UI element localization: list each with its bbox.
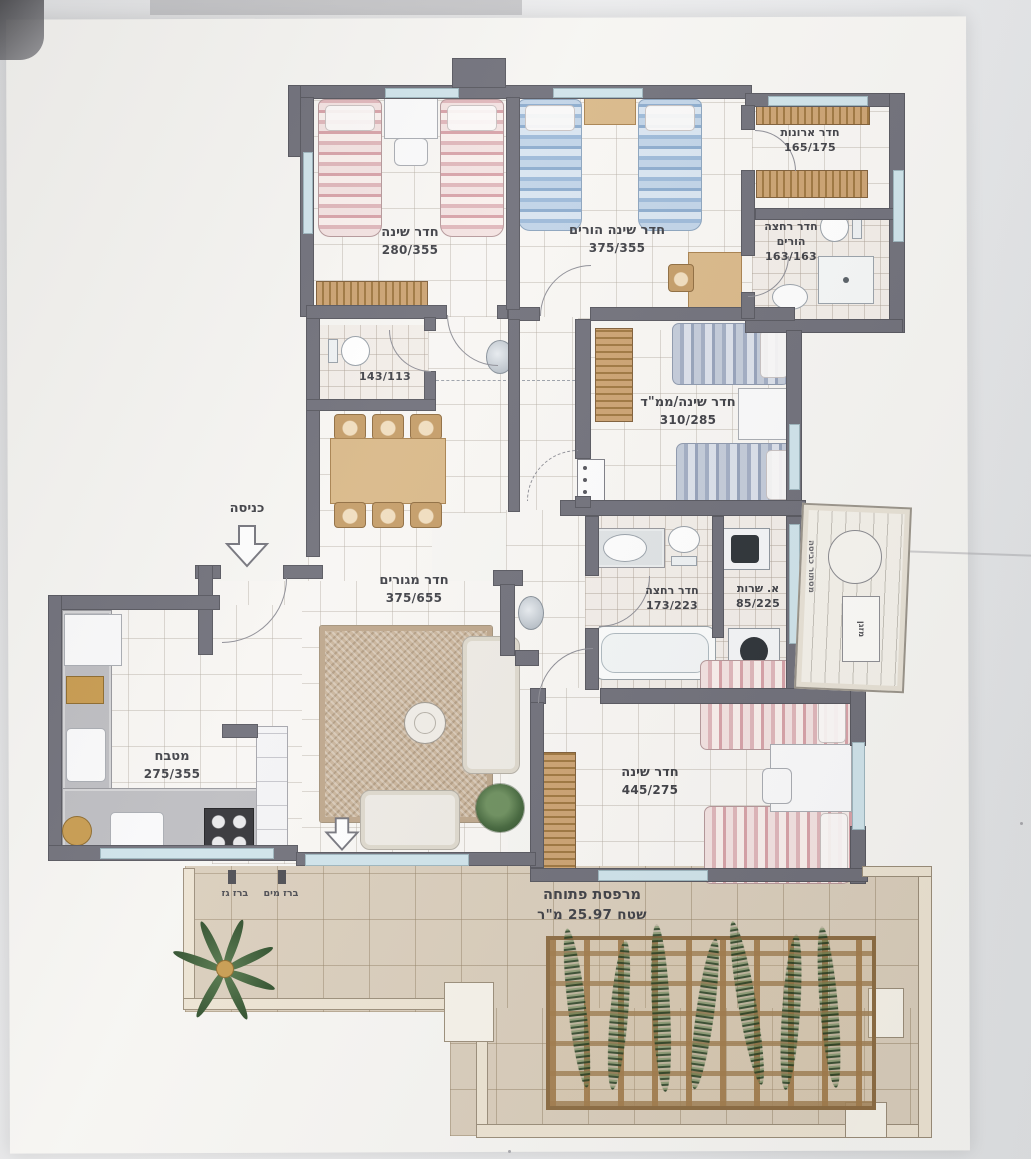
room-label-bathroom: חדר רחצה 173/223 [622, 584, 722, 614]
wall-segment [506, 97, 520, 310]
wall-segment [585, 516, 599, 576]
bed [518, 99, 582, 231]
wall-segment [306, 409, 320, 557]
nightstand [584, 97, 636, 125]
balcony-pillar [444, 982, 494, 1042]
wall-segment [575, 319, 591, 459]
window [852, 742, 865, 830]
dining-chair [372, 414, 404, 440]
dining-chair [334, 502, 366, 528]
wall-segment [745, 319, 903, 333]
dust-speck [508, 1150, 511, 1153]
entrance-label: כניסה [207, 500, 287, 518]
photo-corner-shadow [0, 0, 44, 60]
chair [668, 264, 694, 292]
dashed-line [522, 380, 575, 381]
boiler [828, 530, 882, 584]
dining-chair [410, 502, 442, 528]
wall-segment [560, 500, 806, 516]
desk-chair [762, 768, 792, 804]
wall-segment [222, 724, 258, 738]
room-label-bedroom-1: חדר שינה 280/355 [335, 224, 485, 258]
wall-segment [306, 317, 320, 409]
palm-plant [184, 922, 268, 1014]
wall-segment [755, 208, 903, 220]
floor-plan-photo: מזגן מסתור כביסה חדר שינה 280/355 חדר שי… [0, 0, 1031, 1159]
room-label-balcony: מרפסת פתוחה שטח 25.97 מ"ר [472, 886, 712, 924]
taps-label: ברז מים ברז גז [205, 888, 315, 899]
wall-segment [424, 317, 436, 331]
bed [676, 443, 800, 507]
plant-pot [216, 960, 234, 978]
desk [688, 252, 742, 308]
room-label-bedroom-2: חדר שינה 445/275 [590, 764, 710, 798]
entrance-arrow-icon [224, 524, 270, 572]
wall-segment [198, 565, 213, 655]
dining-table [330, 438, 446, 504]
ac-unit-label: מזגן [856, 621, 866, 637]
wall-segment [850, 688, 866, 746]
room-label-service-room: א. שרות 85/225 [718, 582, 798, 612]
room-label-parents-bathroom: חדר רחצה הורים 163/163 [748, 220, 834, 265]
window [768, 96, 868, 106]
room-label-parents-bedroom: חדר שינה הורים 375/355 [532, 222, 702, 256]
gas-tap-label: ברז גז [222, 888, 249, 899]
sofa [360, 790, 460, 850]
toilet [328, 336, 370, 366]
refrigerator [64, 614, 122, 666]
sink [603, 534, 647, 562]
window [553, 88, 643, 98]
wardrobe [756, 170, 868, 198]
toilet [668, 526, 700, 566]
wall-segment [306, 399, 436, 411]
desk-chair [394, 138, 428, 166]
dining-chair [334, 414, 366, 440]
washing-machine [720, 528, 770, 570]
water-tap-icon [228, 870, 236, 884]
tall-cabinet [256, 726, 288, 854]
photo-top-strip [150, 0, 522, 15]
wall-segment [500, 584, 515, 656]
bed [638, 99, 702, 231]
potted-plant [476, 784, 524, 832]
kitchen-sink [66, 728, 106, 782]
room-label-kitchen: מטבח 275/355 [122, 748, 222, 782]
room-label-safe-room: חדר שינה/ממ"ד 310/285 [620, 394, 756, 428]
wall-segment [515, 650, 539, 666]
bowl [62, 816, 92, 846]
wall-segment [452, 58, 506, 88]
wall-segment [48, 595, 62, 857]
window [598, 870, 708, 881]
room-label-small-bathroom: 143/113 [345, 370, 425, 385]
wall-segment [590, 307, 795, 321]
balcony-exit-arrow-icon [324, 816, 360, 856]
wall-segment [530, 702, 544, 868]
dining-chair [410, 414, 442, 440]
gas-tap-icon [278, 870, 286, 884]
bed [440, 99, 504, 237]
window [303, 152, 313, 234]
dining-chair [372, 502, 404, 528]
wall-segment [283, 565, 323, 579]
dashed-line [436, 380, 506, 381]
desk [384, 97, 438, 139]
tray [66, 676, 104, 704]
wall-segment [508, 319, 520, 512]
dust-speck [1020, 822, 1023, 825]
window [789, 424, 800, 490]
wall-segment [712, 516, 724, 638]
balcony-railing [862, 866, 932, 877]
bed [318, 99, 382, 237]
sofa [462, 636, 520, 774]
coffee-table [404, 702, 446, 744]
room-label-living-room: חדר מגורים 375/655 [344, 572, 484, 606]
water-tap-label: ברז מים [264, 888, 299, 899]
ac-unit: מזגן [842, 596, 880, 662]
bathtub [594, 626, 716, 680]
window [893, 170, 904, 242]
wall-segment [300, 85, 752, 99]
window [385, 88, 459, 98]
window [100, 848, 274, 859]
wall-segment [48, 595, 220, 610]
laundry-screen-label: מסתור כביסה [806, 540, 816, 593]
wall-segment [600, 688, 866, 704]
washbasin [518, 596, 544, 630]
room-label-closet-room: חדר ארונות 165/175 [750, 126, 870, 156]
balcony-railing [918, 866, 932, 1138]
